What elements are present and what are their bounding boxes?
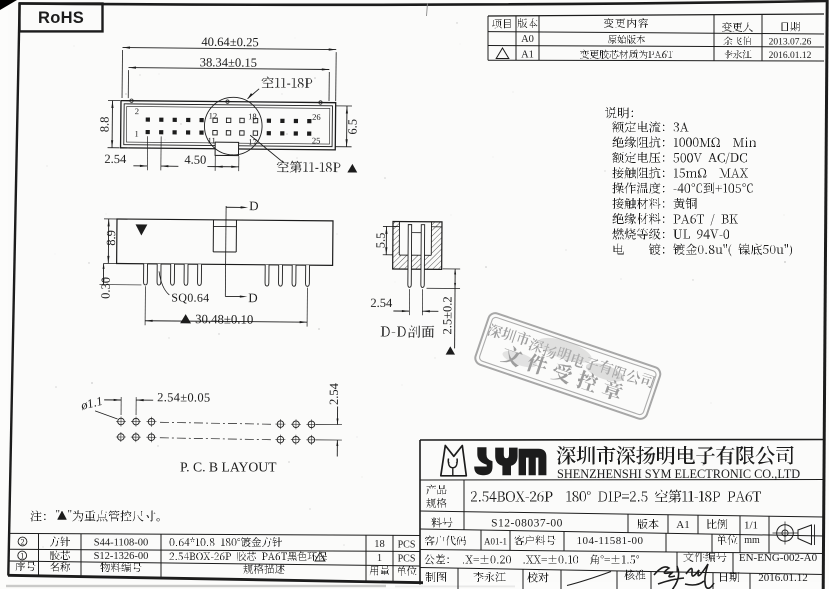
svg-text:1: 1 [377,553,382,564]
svg-text:2.54: 2.54 [104,152,127,166]
svg-text:104-11581-00: 104-11581-00 [577,535,644,547]
svg-text:": " [68,508,73,520]
svg-text:5.5: 5.5 [374,233,388,249]
svg-text:8.8: 8.8 [97,116,111,132]
svg-text:EN-ENG-002-A0: EN-ENG-002-A0 [739,552,818,564]
svg-text:38.34±0.15: 38.34±0.15 [200,55,257,70]
svg-text:S12-08037-00: S12-08037-00 [491,518,563,530]
svg-text:A1: A1 [676,519,689,531]
svg-text:4.50: 4.50 [184,153,206,167]
svg-text:17: 17 [248,137,257,147]
svg-text:SHENZHENSHI SYM ELECTRONIC CO.: SHENZHENSHI SYM ELECTRONIC CO.,LTD [557,467,800,481]
svg-text:2.54: 2.54 [370,296,393,310]
svg-text:26: 26 [312,112,321,122]
svg-text:1: 1 [20,552,24,561]
svg-text:2013.07.26: 2013.07.26 [769,37,812,47]
svg-text:2016.01.12: 2016.01.12 [758,572,808,584]
svg-text:40.64±0.25: 40.64±0.25 [201,35,258,50]
svg-text:D: D [249,198,259,213]
svg-text:2.5±0.2: 2.5±0.2 [440,296,454,334]
svg-text:1: 1 [135,129,139,139]
svg-text:PCS: PCS [398,554,416,565]
svg-text:18: 18 [374,539,385,550]
svg-text:30.48±0.10: 30.48±0.10 [195,312,253,327]
svg-text:2: 2 [135,106,139,116]
svg-text:S12-1326-00: S12-1326-00 [94,551,149,562]
svg-text:2: 2 [21,538,25,547]
svg-text:2.54±0.05: 2.54±0.05 [157,390,210,404]
svg-text:1/1: 1/1 [744,520,758,532]
svg-text:RoHS: RoHS [38,9,84,27]
svg-text:2016.01.12: 2016.01.12 [769,51,812,61]
svg-text:8.9: 8.9 [104,230,118,246]
svg-text:25: 25 [312,135,321,145]
svg-text:0.30: 0.30 [99,277,113,299]
svg-text:A0: A0 [521,34,534,45]
svg-text:P. C. B LAYOUT: P. C. B LAYOUT [180,460,277,475]
svg-text:SQ0.64: SQ0.64 [171,290,209,304]
svg-text:mm: mm [744,535,760,546]
svg-text:S44-1108-00: S44-1108-00 [94,537,148,548]
svg-text:A1: A1 [521,50,534,61]
svg-text:2.54: 2.54 [327,382,341,405]
svg-text:PCS: PCS [398,540,416,551]
svg-text:18: 18 [248,111,257,121]
svg-text:D: D [248,290,258,305]
svg-text:A01-1: A01-1 [484,537,507,547]
svg-text:6.5: 6.5 [345,119,359,135]
svg-text:12: 12 [209,111,218,121]
